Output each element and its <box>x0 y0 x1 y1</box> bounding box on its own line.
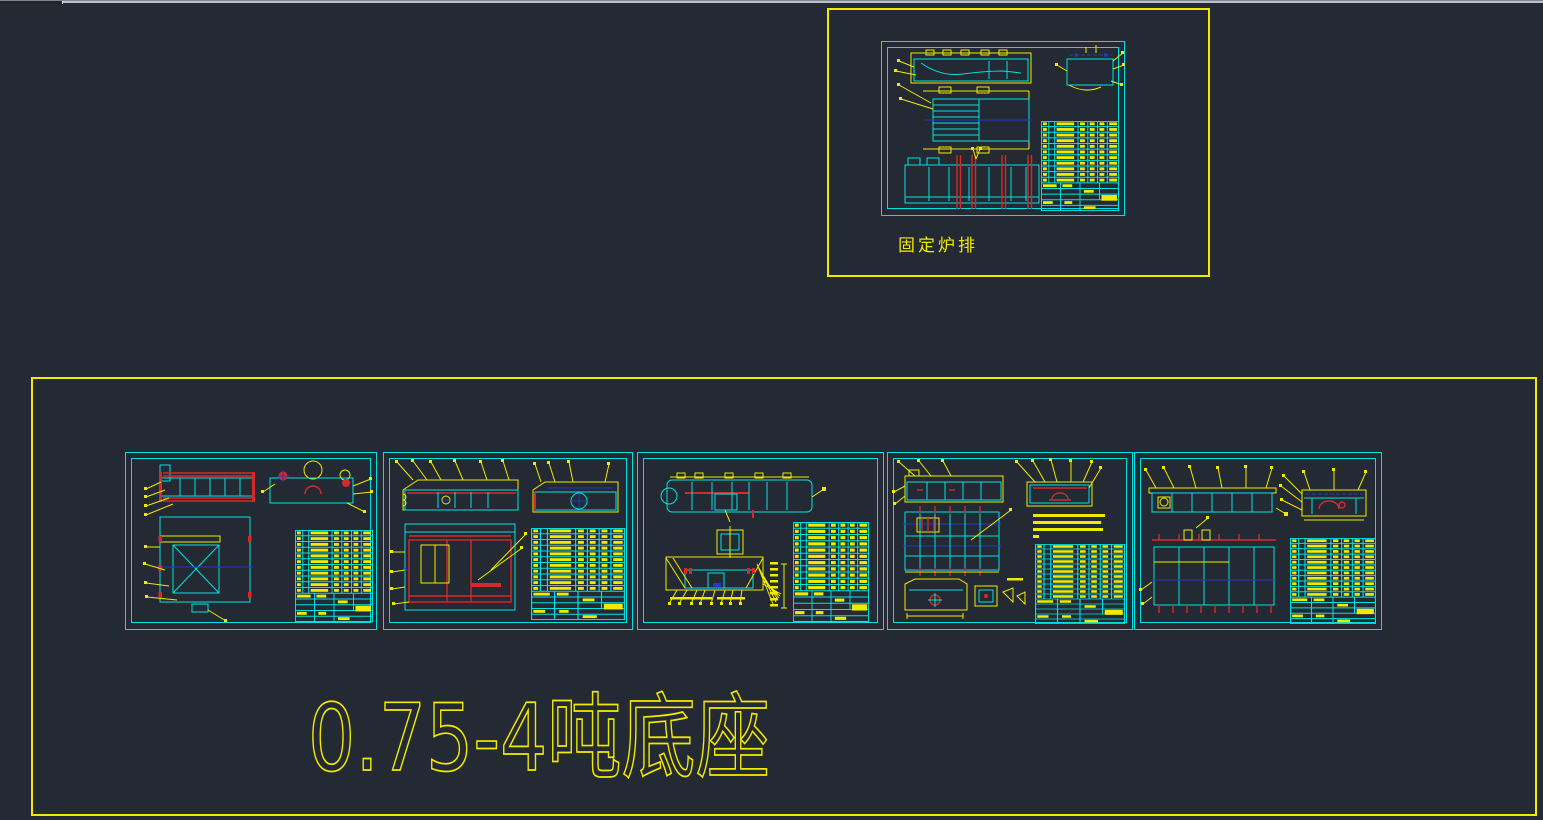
view-grate-top-left <box>894 50 1031 83</box>
parts-table <box>1035 544 1125 624</box>
view-s4-base-end <box>905 579 967 619</box>
cad-viewport[interactable]: 固定炉排 <box>0 0 1543 820</box>
view-s1-plan <box>143 517 253 622</box>
view-s3-lower <box>666 557 787 608</box>
view-s2-elevation <box>395 459 518 510</box>
file-tab-bar <box>0 0 1543 3</box>
sheet-base-2[interactable] <box>383 452 633 630</box>
active-file-tab[interactable] <box>0 1 63 4</box>
view-grate-elevation <box>905 147 1039 209</box>
parts-table <box>295 530 373 622</box>
parts-table <box>531 528 625 620</box>
view-s5-plan <box>1139 516 1276 613</box>
sheet-base-3[interactable] <box>637 452 884 630</box>
base-title-text: 0.75-4吨底座 <box>308 684 770 782</box>
view-s4-small-parts <box>975 578 1025 606</box>
view-s5-long-elevation <box>1144 465 1288 516</box>
parts-table <box>1041 121 1119 211</box>
view-s4-section <box>1015 458 1102 506</box>
view-grate-top-right <box>1055 45 1125 90</box>
view-s4-elevation <box>892 459 1003 505</box>
label-fixed-grate: 固定炉排 <box>898 231 978 256</box>
view-s3-detail <box>717 526 743 558</box>
view-s1-elevation <box>144 465 255 516</box>
sheet-fixed-grate[interactable] <box>881 41 1125 216</box>
view-s2-plan <box>390 524 527 610</box>
parts-table <box>1290 538 1376 624</box>
note-text-lines <box>1033 514 1105 538</box>
sheet-base-1[interactable] <box>125 452 377 630</box>
view-s1-end <box>261 461 373 513</box>
sheet-base-4[interactable] <box>887 452 1133 630</box>
parts-table <box>793 522 869 622</box>
label-base-title-svg: 0.75-4吨底座 <box>300 680 790 782</box>
view-grate-section <box>897 83 1031 153</box>
view-s5-section <box>1279 468 1367 520</box>
view-s2-section <box>533 460 618 512</box>
sheet-base-5[interactable] <box>1134 452 1382 630</box>
view-s4-plan <box>903 506 1012 576</box>
view-s3-long-elevation <box>661 473 826 522</box>
